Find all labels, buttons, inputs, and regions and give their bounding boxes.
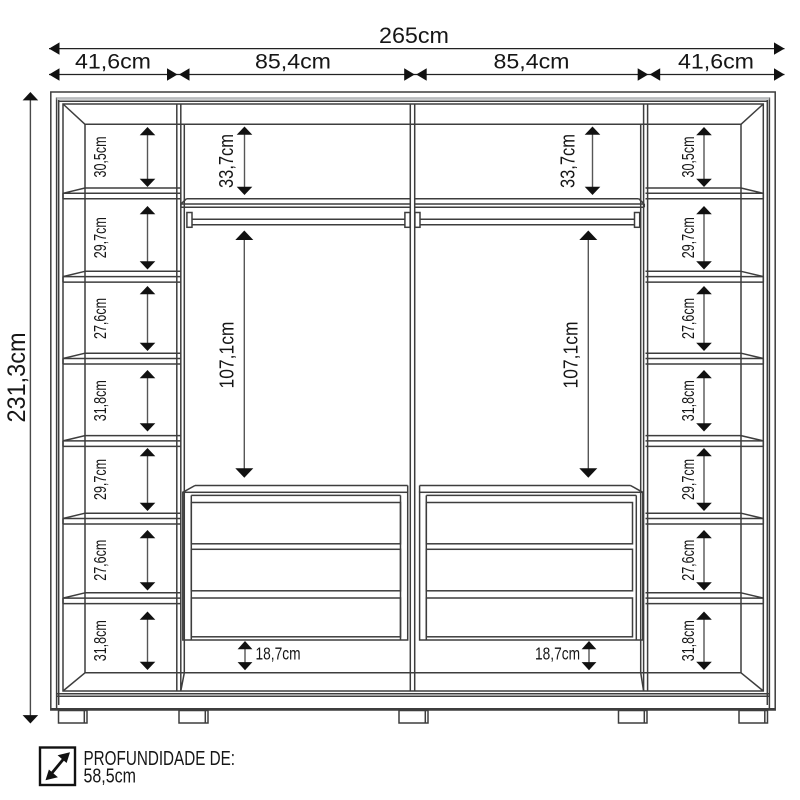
svg-text:31,8cm: 31,8cm <box>90 620 110 661</box>
svg-text:85,4cm: 85,4cm <box>255 51 331 74</box>
svg-text:18,7cm: 18,7cm <box>256 644 301 664</box>
svg-text:33,7cm: 33,7cm <box>216 134 238 188</box>
svg-text:29,7cm: 29,7cm <box>678 217 698 258</box>
svg-text:58,5cm: 58,5cm <box>84 765 137 788</box>
svg-text:31,8cm: 31,8cm <box>678 620 698 661</box>
svg-text:27,6cm: 27,6cm <box>678 298 698 339</box>
svg-text:27,6cm: 27,6cm <box>678 540 698 581</box>
svg-text:30,5cm: 30,5cm <box>90 137 110 178</box>
svg-text:31,8cm: 31,8cm <box>90 380 110 421</box>
svg-text:85,4cm: 85,4cm <box>494 51 570 74</box>
svg-text:29,7cm: 29,7cm <box>678 459 698 500</box>
svg-text:27,6cm: 27,6cm <box>90 298 110 339</box>
svg-text:29,7cm: 29,7cm <box>90 217 110 258</box>
svg-text:33,7cm: 33,7cm <box>557 134 579 188</box>
svg-text:30,5cm: 30,5cm <box>678 137 698 178</box>
svg-text:18,7cm: 18,7cm <box>535 644 580 664</box>
svg-text:265cm: 265cm <box>379 23 449 48</box>
svg-text:107,1cm: 107,1cm <box>217 322 239 389</box>
svg-text:27,6cm: 27,6cm <box>90 540 110 581</box>
svg-text:41,6cm: 41,6cm <box>75 51 151 74</box>
svg-text:41,6cm: 41,6cm <box>678 51 754 74</box>
svg-text:231,3cm: 231,3cm <box>3 333 31 423</box>
svg-text:107,1cm: 107,1cm <box>560 322 582 389</box>
svg-text:31,8cm: 31,8cm <box>678 380 698 421</box>
svg-text:29,7cm: 29,7cm <box>90 459 110 500</box>
